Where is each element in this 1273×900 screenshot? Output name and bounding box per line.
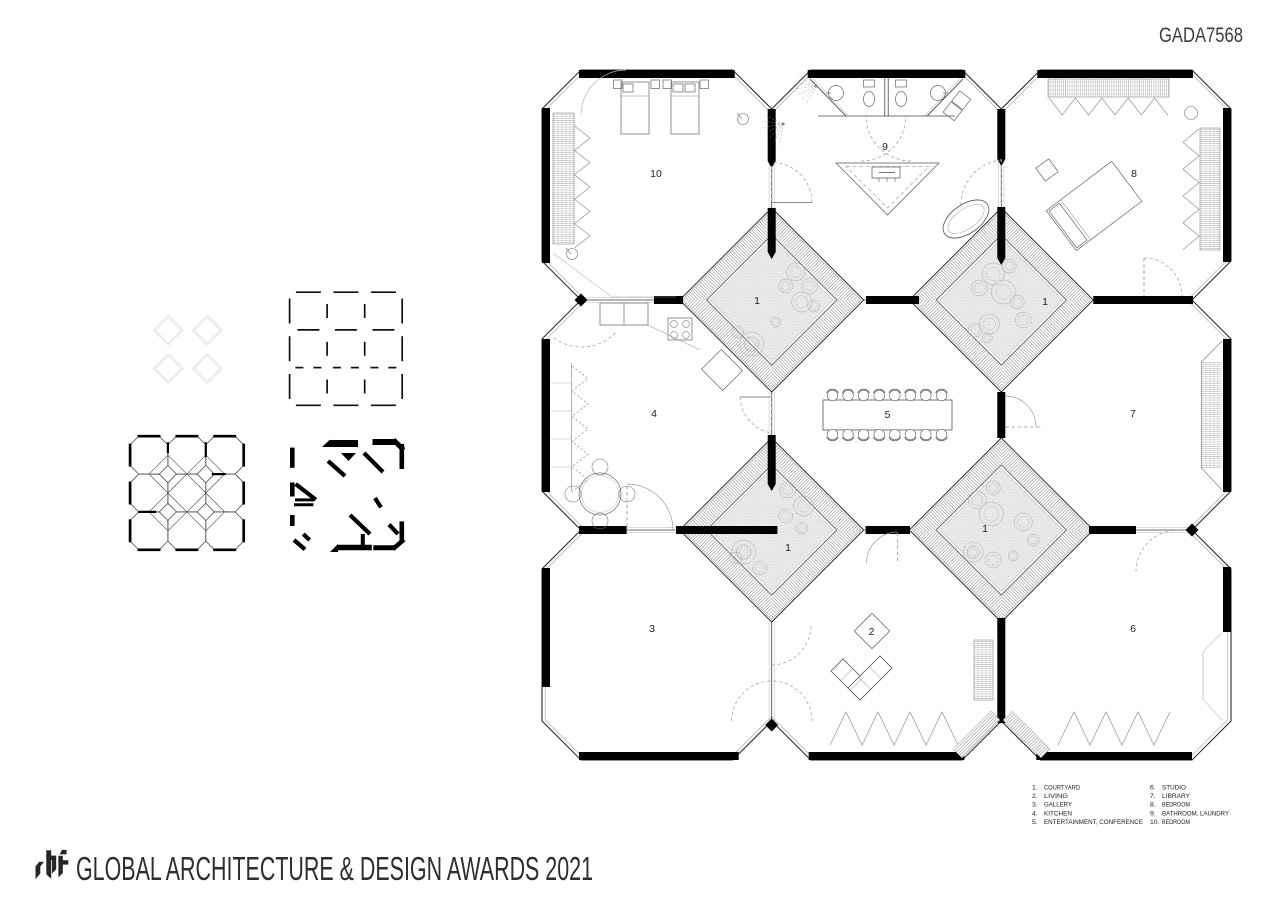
svg-text:BATHROOM, LAUNDRY: BATHROOM, LAUNDRY [1162,810,1229,817]
svg-text:COURTYARD: COURTYARD [1044,785,1080,792]
svg-text:1: 1 [785,542,791,554]
svg-text:6: 6 [1130,623,1136,635]
svg-text:5.: 5. [1032,819,1038,826]
svg-text:9: 9 [882,141,888,153]
svg-text:1.: 1. [1032,785,1038,792]
svg-text:7: 7 [1130,408,1136,420]
svg-text:9.: 9. [1150,810,1156,817]
svg-text:1: 1 [1042,296,1048,308]
svg-text:8: 8 [1131,168,1137,180]
svg-text:2: 2 [869,626,875,638]
svg-text:6.: 6. [1150,785,1156,792]
svg-text:7.: 7. [1150,793,1156,800]
svg-text:GADA7568: GADA7568 [1159,23,1243,47]
svg-text:LIVING: LIVING [1044,793,1068,800]
svg-text:GLOBAL ARCHITECTURE & DESIGN A: GLOBAL ARCHITECTURE & DESIGN AWARDS 2021 [76,851,593,888]
svg-text:1: 1 [754,295,760,307]
svg-text:10: 10 [650,168,662,180]
svg-text:BEDROOM: BEDROOM [1162,819,1190,826]
svg-text:KITCHEN: KITCHEN [1044,810,1072,817]
svg-text:1: 1 [982,523,988,535]
svg-text:8.: 8. [1150,802,1156,809]
svg-text:2.: 2. [1032,793,1038,800]
svg-text:10.: 10. [1150,819,1160,826]
svg-text:LIBRARY: LIBRARY [1162,793,1190,800]
svg-text:GALLERY: GALLERY [1044,802,1072,809]
svg-text:4.: 4. [1032,810,1038,817]
svg-text:5: 5 [885,409,891,421]
svg-text:ENTERTAINMENT, CONFERENCE: ENTERTAINMENT, CONFERENCE [1044,819,1143,826]
svg-text:3.: 3. [1032,802,1038,809]
svg-text:STUDIO: STUDIO [1162,785,1186,792]
svg-text:3: 3 [649,623,655,635]
svg-text:4: 4 [651,408,657,420]
svg-text:BEDROOM: BEDROOM [1162,802,1190,809]
